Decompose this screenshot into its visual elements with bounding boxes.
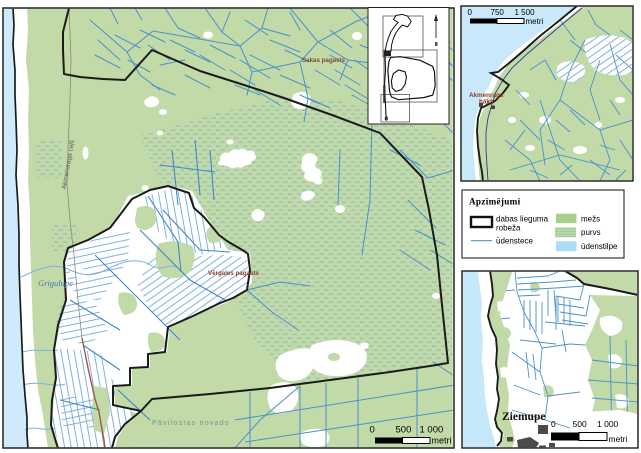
svg-text:0: 0 xyxy=(551,419,556,429)
svg-text:bāka: bāka xyxy=(479,99,494,106)
svg-text:dabas lieguma: dabas lieguma xyxy=(496,215,549,224)
svg-text:ūdenstilpe: ūdenstilpe xyxy=(581,242,618,251)
svg-text:metri: metri xyxy=(432,436,452,446)
svg-text:1 000: 1 000 xyxy=(597,419,619,429)
svg-text:500: 500 xyxy=(396,425,412,436)
svg-text:500: 500 xyxy=(573,419,587,429)
svg-text:mežs: mežs xyxy=(581,215,600,224)
svg-text:0: 0 xyxy=(370,425,375,436)
svg-text:1 500: 1 500 xyxy=(515,8,536,17)
svg-text:1 000: 1 000 xyxy=(420,425,444,436)
svg-text:purvs: purvs xyxy=(581,228,601,237)
svg-text:metri: metri xyxy=(609,434,628,444)
svg-text:Sakas pagasts: Sakas pagasts xyxy=(302,57,346,64)
svg-text:Ziemupe: Ziemupe xyxy=(502,411,545,423)
svg-text:Pāvilostas novads: Pāvilostas novads xyxy=(152,420,230,427)
svg-text:0: 0 xyxy=(468,8,473,17)
svg-text:Grigulupe: Grigulupe xyxy=(38,278,73,288)
svg-text:Apzīmējumi: Apzīmējumi xyxy=(469,197,521,207)
svg-text:metri: metri xyxy=(526,17,544,26)
svg-text:750: 750 xyxy=(491,8,505,17)
svg-text:robeža: robeža xyxy=(496,224,521,233)
svg-text:ūdenstece: ūdenstece xyxy=(496,237,533,246)
svg-text:Vērgales pagasts: Vērgales pagasts xyxy=(208,270,259,277)
